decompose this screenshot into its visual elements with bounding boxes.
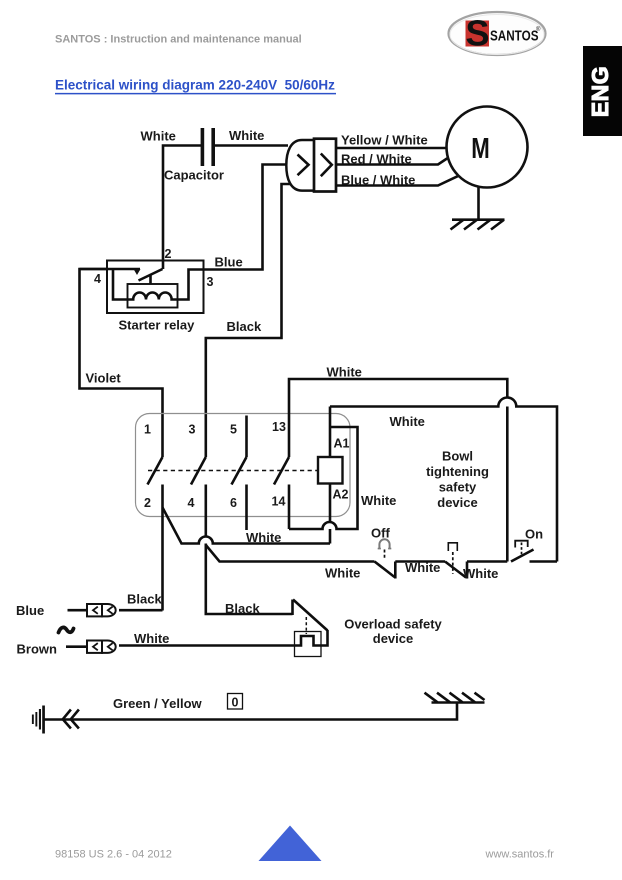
svg-text:Off: Off (371, 526, 390, 541)
svg-text:Black: Black (127, 592, 162, 607)
svg-text:safety: safety (439, 480, 477, 495)
svg-text:SANTOS: SANTOS (490, 27, 539, 44)
svg-text:Green / Yellow: Green / Yellow (113, 696, 203, 711)
svg-text:A2: A2 (333, 488, 349, 502)
svg-text:Yellow / White: Yellow / White (341, 133, 428, 148)
svg-text:13: 13 (272, 420, 286, 434)
svg-text:White: White (361, 493, 396, 508)
svg-text:Black: Black (227, 319, 262, 334)
svg-text:device: device (373, 631, 413, 646)
svg-text:5: 5 (230, 423, 237, 437)
svg-text:White: White (390, 414, 425, 429)
svg-text:Brown: Brown (17, 642, 58, 657)
svg-text:Red / White: Red / White (341, 152, 412, 167)
svg-text:Bowl: Bowl (442, 449, 473, 464)
svg-text:Blue / White: Blue / White (341, 173, 415, 188)
svg-text:6: 6 (230, 496, 237, 510)
svg-text:4: 4 (94, 272, 101, 286)
svg-text:Starter relay: Starter relay (119, 318, 196, 333)
svg-text:0: 0 (232, 696, 239, 710)
svg-text:White: White (405, 560, 440, 575)
svg-text:White: White (246, 530, 281, 545)
svg-text:2: 2 (165, 247, 172, 261)
svg-text:Blue: Blue (215, 255, 243, 270)
svg-text:On: On (525, 527, 543, 542)
svg-text:tightening: tightening (426, 464, 489, 479)
svg-text:3: 3 (207, 275, 214, 289)
svg-text:Overload safety: Overload safety (344, 617, 442, 632)
svg-text:White: White (325, 566, 360, 581)
svg-text:Blue: Blue (16, 603, 44, 618)
svg-text:ENG: ENG (587, 66, 613, 117)
svg-text:White: White (327, 365, 362, 380)
svg-text:device: device (437, 495, 477, 510)
svg-text:M: M (471, 133, 490, 164)
svg-text:2: 2 (144, 496, 151, 510)
svg-text:98158 US 2.6 - 04 2012: 98158 US 2.6 - 04 2012 (55, 849, 172, 861)
svg-text:®: ® (536, 26, 541, 33)
svg-text:14: 14 (272, 495, 286, 509)
svg-text:Violet: Violet (86, 371, 122, 386)
svg-text:A1: A1 (334, 437, 350, 451)
svg-text:1: 1 (144, 423, 151, 437)
svg-text:White: White (141, 129, 176, 144)
svg-text:Electrical wiring diagram 220-: Electrical wiring diagram 220-240V 50/60… (55, 78, 335, 93)
svg-text:Black: Black (225, 601, 260, 616)
svg-text:www.santos.fr: www.santos.fr (485, 849, 555, 861)
svg-text:White: White (134, 631, 169, 646)
svg-text:White: White (463, 566, 498, 581)
svg-text:Capacitor: Capacitor (164, 168, 224, 183)
svg-text:SANTOS : Instruction and maint: SANTOS : Instruction and maintenance man… (55, 34, 302, 46)
svg-text:White: White (229, 128, 264, 143)
svg-text:S: S (465, 13, 489, 54)
svg-text:4: 4 (188, 496, 195, 510)
svg-text:3: 3 (189, 423, 196, 437)
